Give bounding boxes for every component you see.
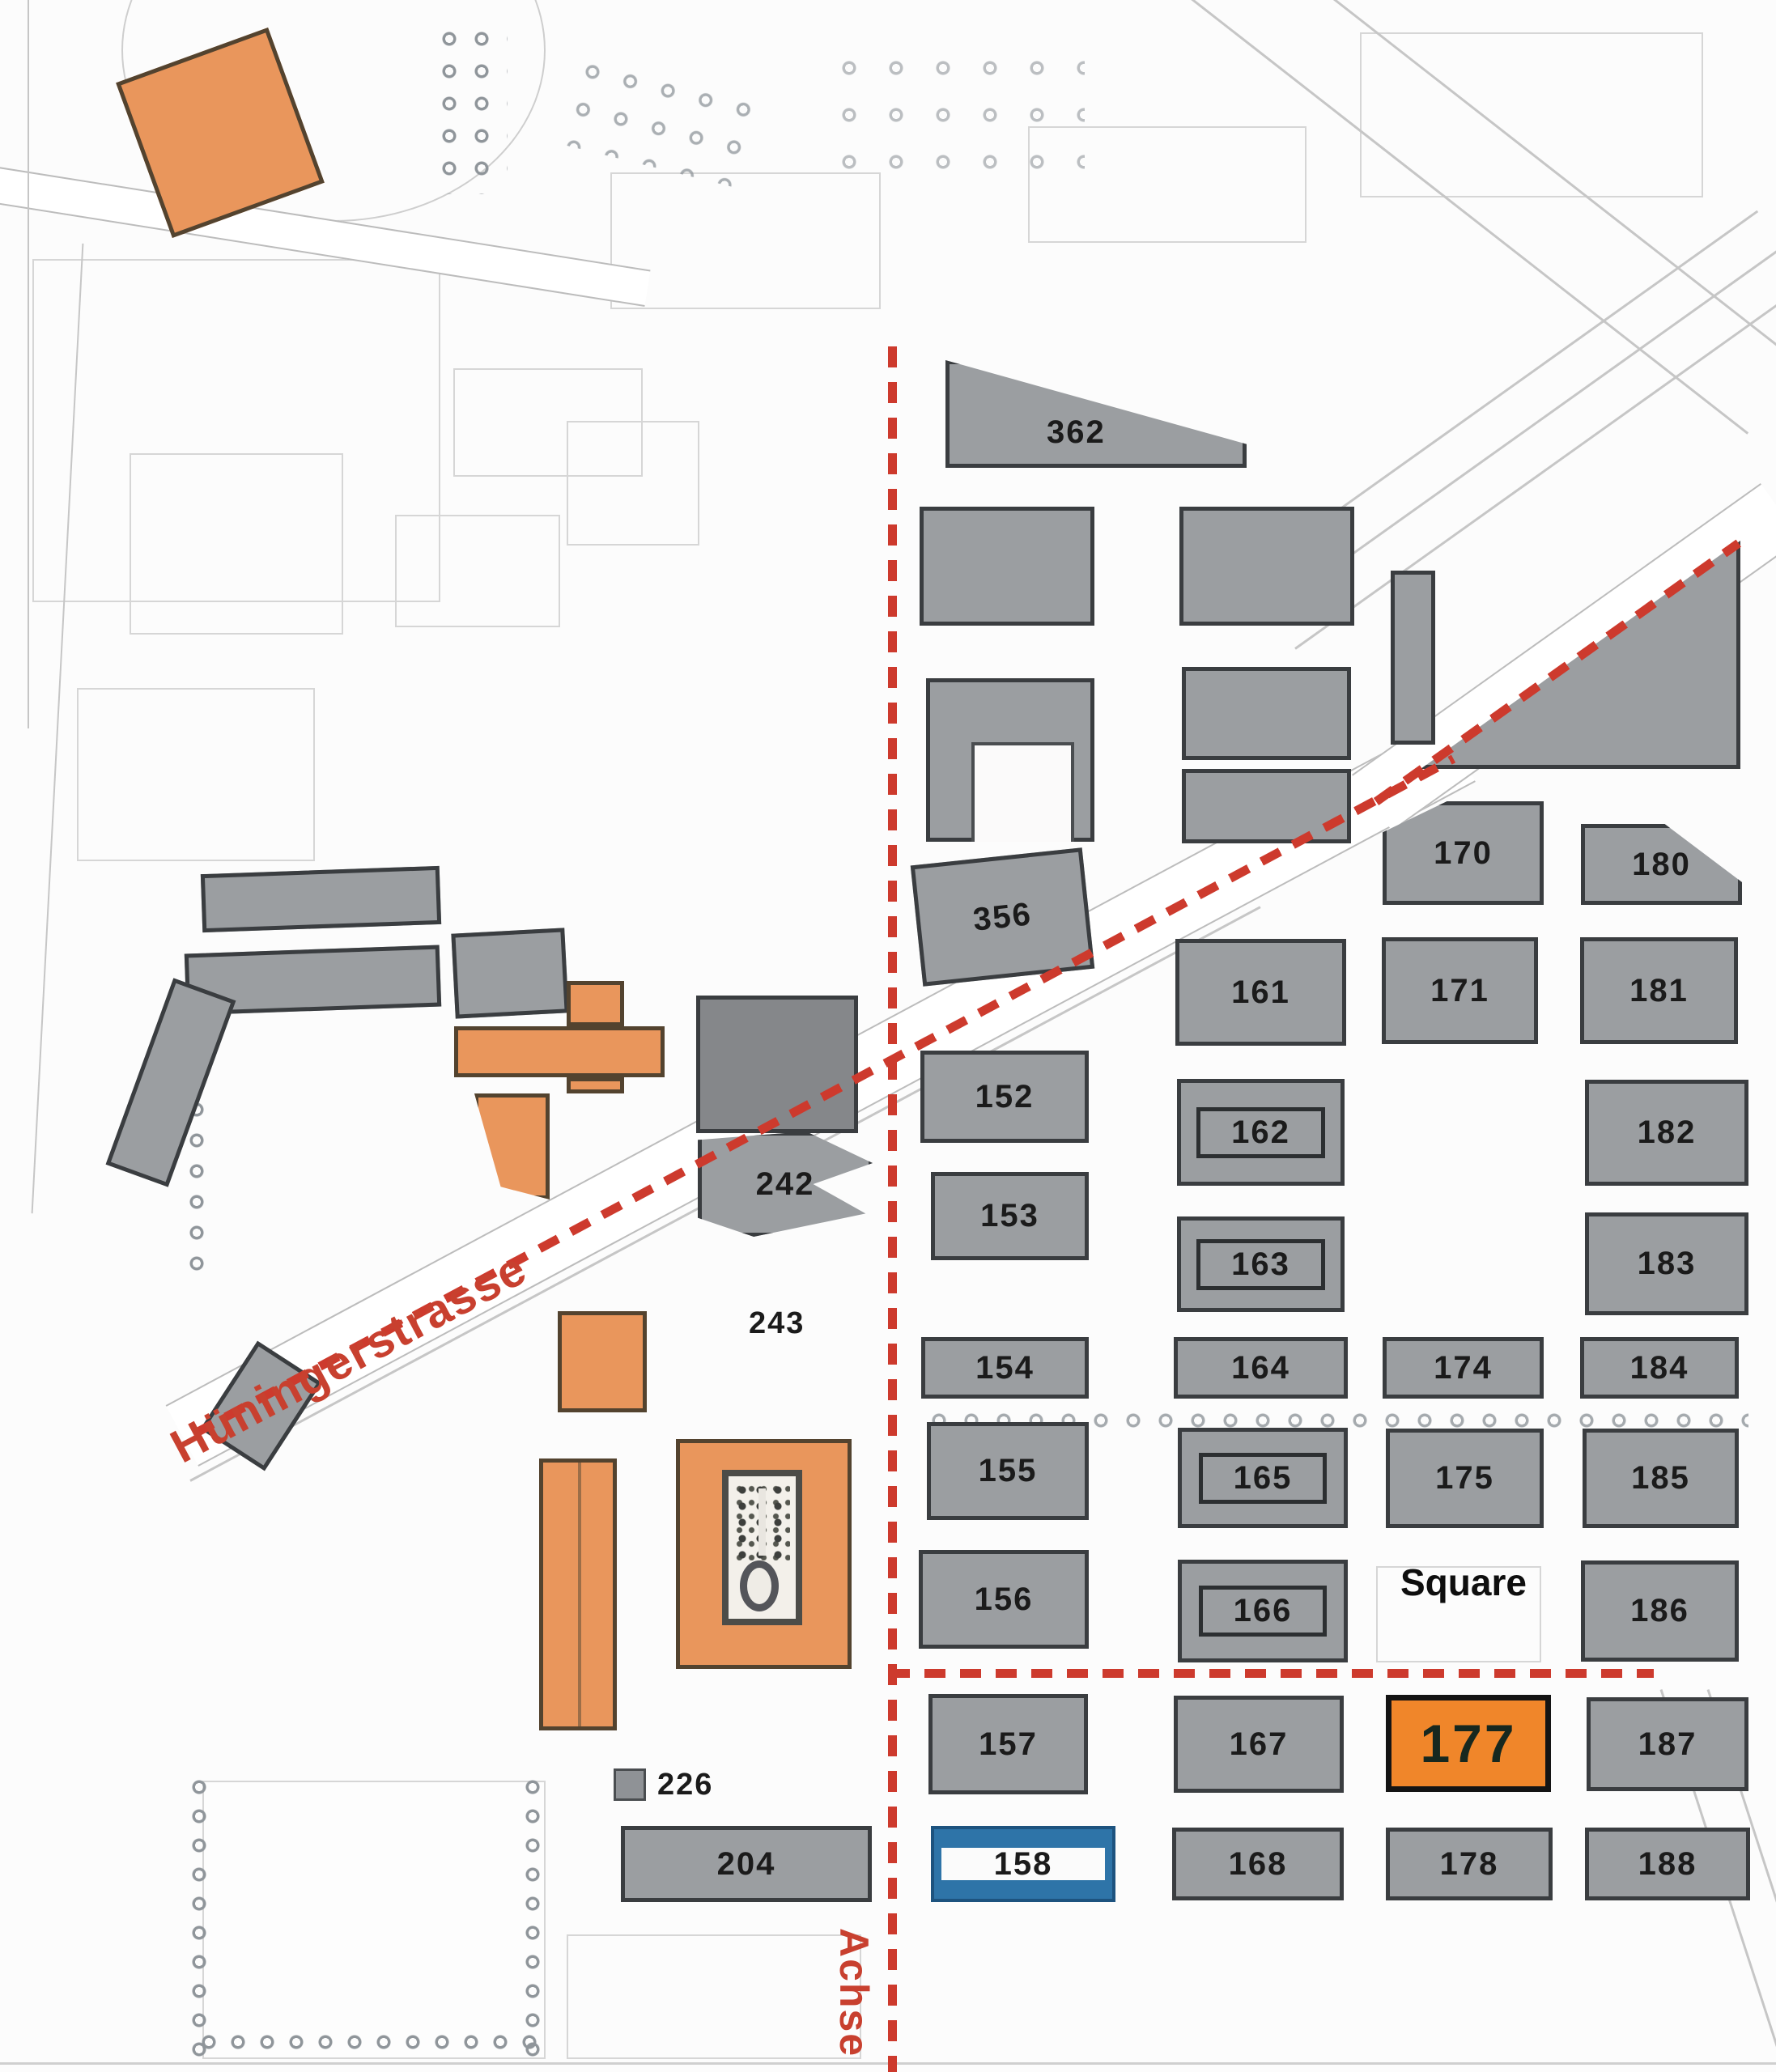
building-153: 153: [931, 1172, 1089, 1260]
building-area-39: [1391, 571, 1435, 745]
road-left: [28, 0, 29, 728]
building-area-50: [567, 1077, 624, 1093]
axis-dashed-line-vertical: [888, 346, 897, 2072]
fountain-ring: [740, 1560, 779, 1611]
building-177: 177: [1386, 1695, 1551, 1792]
building-number-label: 171: [1430, 973, 1489, 1009]
building-165: 165: [1178, 1428, 1348, 1528]
building-number-label: 167: [1230, 1726, 1289, 1763]
street-label-hueningerstrasse: Hüningerstrasse: [162, 1241, 536, 1474]
courtyard: [722, 1470, 802, 1625]
building-area-51: [474, 1093, 550, 1199]
building-158: 158: [931, 1826, 1115, 1902]
building-number-label: 356: [971, 896, 1034, 938]
parcel-outline: [395, 515, 560, 627]
building-175: 175: [1386, 1429, 1544, 1528]
tree-row: [185, 1773, 217, 2060]
street-label-achse: Achse: [831, 1928, 877, 2057]
legend-label-226: 226: [657, 1768, 713, 1802]
building-156: 156: [919, 1550, 1089, 1649]
building-number-label: 175: [1435, 1460, 1494, 1497]
building-204: 204: [621, 1826, 872, 1902]
building-178: 178: [1386, 1828, 1553, 1900]
building-number-label: 165: [1234, 1460, 1293, 1497]
building-number-label: 185: [1631, 1460, 1690, 1497]
building-164: 164: [1174, 1337, 1348, 1399]
inner-outline: 165: [1199, 1453, 1328, 1504]
inner-outline: 162: [1196, 1107, 1325, 1158]
building-number-label: 153: [980, 1198, 1039, 1234]
building-number-label: 187: [1638, 1726, 1697, 1763]
tree-row: [194, 2027, 542, 2058]
building-number-label: 181: [1629, 973, 1689, 1009]
building-area-52: [558, 1311, 647, 1412]
building-180: 180: [1581, 824, 1742, 905]
building-185: 185: [1583, 1429, 1739, 1528]
inner-outline: 163: [1196, 1239, 1325, 1290]
building-area-42: [201, 866, 441, 932]
building-186: 186: [1581, 1560, 1739, 1662]
building-number-label: 182: [1638, 1115, 1697, 1151]
building-number-label: 164: [1231, 1350, 1290, 1386]
building-number-label: 178: [1440, 1846, 1499, 1883]
tree-motif: [733, 1482, 790, 1560]
parcel-outline: [77, 688, 315, 861]
building-area-45: [451, 928, 568, 1018]
label-band: 158: [941, 1848, 1105, 1880]
building-number-label: 204: [717, 1846, 776, 1883]
building-154: 154: [921, 1337, 1089, 1399]
parcel-outline: [610, 172, 881, 309]
area-label-243: 243: [749, 1306, 805, 1341]
building-number-label: 158: [994, 1846, 1053, 1883]
building-number-label: 177: [1420, 1713, 1516, 1774]
building-157: 157: [928, 1694, 1088, 1794]
parcel-outline: [130, 453, 343, 635]
building-area-35: [1179, 507, 1354, 626]
parcel-outline: [567, 421, 699, 546]
building-divider: [578, 1463, 581, 1726]
building-152: 152: [920, 1051, 1089, 1143]
building-number-label: 184: [1630, 1350, 1689, 1386]
building-number-label: 163: [1231, 1246, 1290, 1283]
building-area-41: [696, 996, 858, 1133]
building-area-49: [567, 981, 624, 1026]
building-number-label: 162: [1231, 1115, 1290, 1151]
site-plan-map: 3623561521531541551561572041581611621631…: [0, 0, 1776, 2072]
building-number-label: 188: [1638, 1846, 1697, 1883]
tree-row: [826, 45, 1085, 182]
building-number-label: 161: [1231, 974, 1290, 1011]
building-187: 187: [1587, 1697, 1748, 1791]
building-area-38: [926, 678, 1094, 842]
axis-dashed-line-horizontal: [889, 1669, 1654, 1678]
courtyard-notch: [971, 742, 1074, 842]
parcel-outline: [202, 1781, 546, 2059]
building-number-label: 168: [1229, 1846, 1288, 1883]
building-362: 362: [945, 360, 1247, 468]
building-number-label: 156: [975, 1582, 1034, 1618]
building-161: 161: [1175, 939, 1346, 1046]
building-number-label: 155: [979, 1453, 1038, 1489]
tree-row: [433, 23, 508, 194]
building-number-label: 157: [979, 1726, 1038, 1763]
building-167: 167: [1174, 1696, 1344, 1793]
building-168: 168: [1172, 1828, 1344, 1900]
building-area-53: [539, 1458, 617, 1730]
building-number-label: 174: [1434, 1350, 1493, 1386]
tree-row: [518, 1773, 550, 2060]
building-area-34: [920, 507, 1094, 626]
building-188: 188: [1585, 1828, 1750, 1900]
building-number-label: 242: [756, 1166, 815, 1203]
building-area-36: [1182, 667, 1351, 760]
building-area-48: [454, 1026, 665, 1077]
building-174: 174: [1383, 1337, 1544, 1399]
building-number-label: 180: [1632, 847, 1691, 883]
building-163: 163: [1177, 1216, 1345, 1312]
tree-row: [554, 49, 775, 192]
building-166: 166: [1178, 1560, 1348, 1662]
building-162: 162: [1177, 1079, 1345, 1186]
building-number-label: 362: [1047, 414, 1106, 451]
building-184: 184: [1580, 1337, 1739, 1399]
building-171: 171: [1382, 937, 1538, 1044]
building-number-label: 152: [975, 1079, 1035, 1115]
building-183: 183: [1585, 1212, 1748, 1315]
inner-outline: 166: [1199, 1586, 1328, 1637]
square-label: Square: [1400, 1560, 1527, 1604]
building-number-label: 186: [1630, 1593, 1689, 1629]
building-number-label: 154: [975, 1350, 1035, 1386]
building-number-label: 170: [1434, 835, 1493, 872]
building-area-54: [676, 1439, 852, 1669]
legend-swatch: [614, 1768, 646, 1801]
building-155: 155: [927, 1422, 1089, 1520]
building-181: 181: [1580, 937, 1738, 1044]
parcel-outline: [567, 1934, 861, 2059]
building-182: 182: [1585, 1080, 1748, 1186]
building-number-label: 183: [1638, 1246, 1697, 1282]
building-number-label: 166: [1234, 1593, 1293, 1629]
